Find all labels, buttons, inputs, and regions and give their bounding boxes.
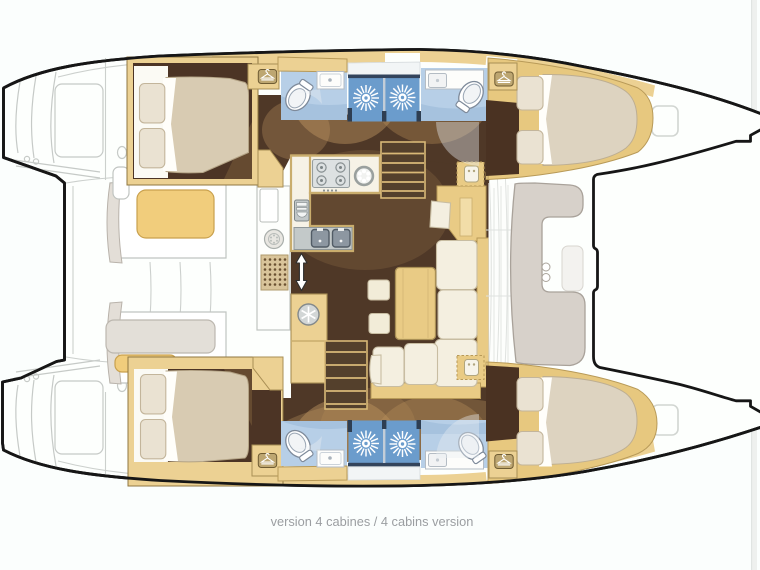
svg-text:version 4 cabines / 4 cabins v: version 4 cabines / 4 cabins version xyxy=(271,514,474,529)
